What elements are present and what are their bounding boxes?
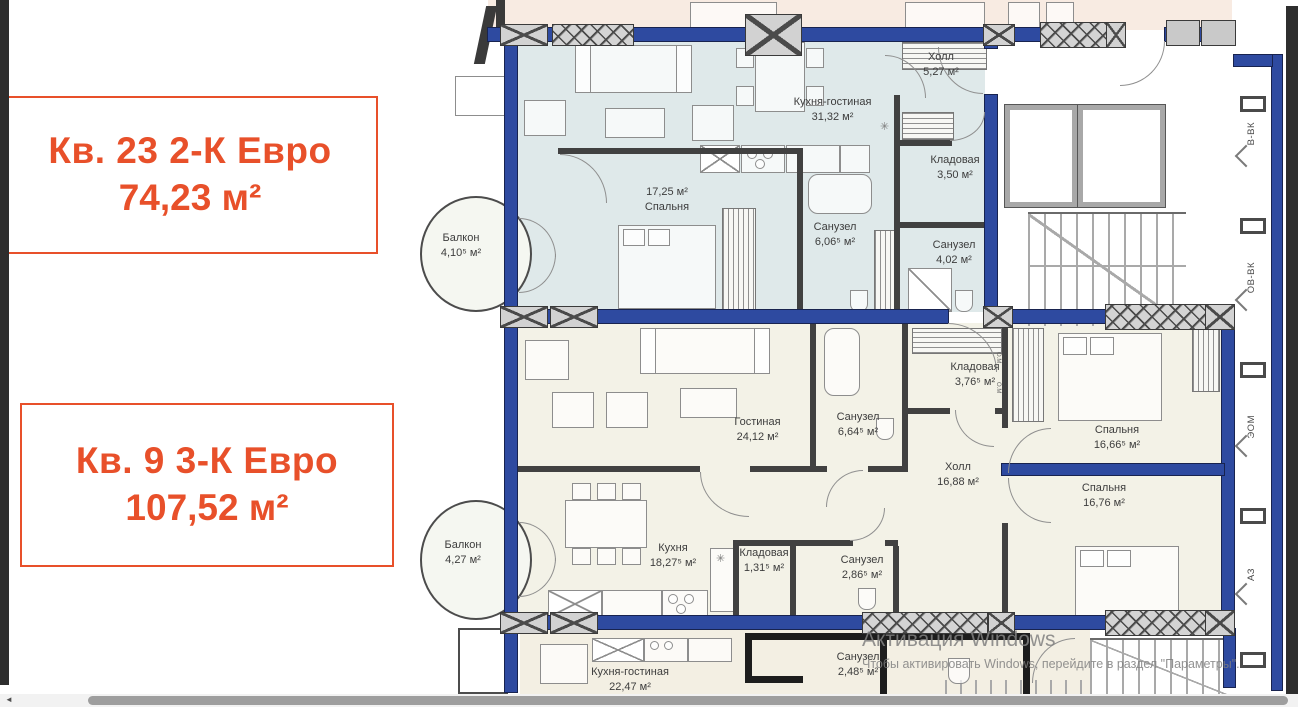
room-label-kitchen-living: Кухня-гостиная31,32 м² — [770, 95, 895, 126]
shaft-chevron — [1235, 583, 1258, 606]
room-label-bedroom: Спальня16,76 м² — [1063, 481, 1145, 512]
column — [550, 612, 598, 634]
fridge-icon: ✳ — [716, 552, 725, 565]
elevator-shaft — [1078, 105, 1165, 207]
elevator-shaft — [1005, 105, 1077, 207]
burner — [650, 641, 659, 650]
apartment-card-9: Кв. 9 3-К Евро 107,52 м² — [20, 403, 394, 567]
chair — [572, 483, 591, 500]
interior-wall — [810, 323, 816, 468]
column — [983, 24, 1015, 46]
room-label-kitchen-living: Кухня-гостиная22,47 м² — [565, 665, 695, 696]
balcony-fragment — [458, 628, 508, 694]
wall-segment — [505, 629, 517, 692]
burner — [676, 604, 686, 614]
column — [1205, 304, 1235, 330]
sofa — [640, 328, 770, 374]
column — [1106, 22, 1126, 48]
kitchen-sink — [592, 638, 644, 662]
column — [1105, 304, 1207, 330]
interior-wall — [745, 633, 752, 681]
pillow — [1080, 550, 1104, 567]
sofa-arm — [676, 45, 692, 93]
room-label-living: Гостиная24,12 м² — [715, 415, 800, 446]
duct-shaft — [874, 230, 896, 316]
room-label-bedroom: Спальня17,25 м² — [628, 185, 706, 216]
column — [1201, 20, 1236, 46]
interior-wall — [902, 408, 950, 414]
apartment-title: Кв. 9 3-К Евро — [76, 438, 338, 484]
left-edge-bar — [0, 0, 9, 685]
room-label-balcony: Балкон4,10⁵ м² — [428, 231, 494, 262]
shaft-label: ОВ-ВК — [1246, 262, 1257, 293]
interior-wall — [894, 222, 989, 228]
shaft-label: В-ВК — [1246, 122, 1257, 145]
scroll-left-arrow-icon[interactable]: ◄ — [5, 695, 13, 704]
shaft-wall — [1240, 218, 1266, 234]
armchair — [524, 100, 566, 136]
interior-wall — [902, 323, 908, 472]
shaft-label: АЗ — [1246, 568, 1257, 581]
wardrobe-shelving — [902, 112, 954, 140]
room-label-hall: Холл16,88 м² — [920, 460, 996, 491]
wall-segment — [505, 28, 517, 629]
wall-segment — [1234, 55, 1272, 66]
room-label-balcony: Балкон4,27 м² — [430, 538, 496, 569]
toilet — [850, 290, 868, 312]
watermark-title: Активация Windows — [862, 628, 1240, 652]
column — [552, 24, 634, 46]
room-label-storage: Кладовая3,50 м² — [924, 153, 986, 184]
shaft-label: ЭОМ — [1246, 415, 1257, 439]
chair — [597, 548, 616, 565]
interior-wall — [1002, 523, 1008, 618]
armchair — [525, 340, 569, 380]
furniture — [905, 2, 985, 28]
column — [500, 24, 548, 46]
chair — [736, 86, 754, 106]
pillow — [1090, 337, 1114, 355]
watermark-subtitle: Чтобы активировать Windows, перейдите в … — [862, 657, 1240, 671]
shaft-wall — [1240, 96, 1266, 112]
interior-wall — [894, 95, 900, 316]
armchair — [692, 105, 734, 141]
shower — [908, 268, 952, 312]
shaft-wall — [1240, 362, 1266, 378]
sofa-arm — [640, 328, 656, 374]
stair-landing-line — [1028, 265, 1186, 267]
column — [983, 306, 1013, 328]
room-label-bedroom: Спальня16,66⁵ м² — [1076, 423, 1158, 454]
coffee-table — [680, 388, 737, 418]
shaft-wall — [1240, 652, 1266, 668]
wardrobe-shelving — [1192, 328, 1220, 392]
interior-wall — [745, 676, 803, 683]
interior-wall — [813, 466, 827, 472]
room-label-bathroom: Санузел6,06⁵ м² — [800, 220, 870, 251]
wardrobe-shelving — [1012, 328, 1044, 422]
windows-activation-watermark: Активация Windows Чтобы активировать Win… — [862, 628, 1240, 671]
shaft-chevron — [1235, 145, 1258, 168]
kitchen-counter — [688, 638, 732, 662]
wall-segment — [985, 95, 997, 323]
room-label-bathroom: Санузел6,64⁵ м² — [822, 410, 894, 441]
armchair — [552, 392, 594, 428]
toilet — [858, 588, 876, 610]
bathtub — [808, 174, 872, 214]
scrollbar-thumb[interactable] — [88, 696, 1288, 705]
apartment-card-23: Кв. 23 2-К Евро 74,23 м² — [2, 96, 378, 254]
pillow — [1107, 550, 1131, 567]
pillow — [623, 229, 645, 246]
column — [500, 306, 548, 328]
floorplan-page: Кв. 23 2-К Евро 74,23 м² Кв. 9 3-К Евро … — [0, 0, 1298, 707]
door-arc — [1120, 41, 1165, 86]
sofa-arm — [575, 45, 591, 93]
room-label-bathroom: Санузел4,02 м² — [920, 238, 988, 269]
chair — [572, 548, 591, 565]
chair — [622, 483, 641, 500]
pillow — [648, 229, 670, 246]
column — [500, 612, 548, 634]
balcony-fragment — [455, 76, 507, 116]
right-edge-bar — [1286, 6, 1298, 694]
room-label-storage: Кладовая3,76⁵ м² — [936, 360, 1014, 391]
kitchen-counter — [602, 590, 662, 618]
column — [745, 14, 802, 56]
room-label-storage: Кладовая1,31⁵ м² — [728, 546, 800, 577]
apartment-area: 74,23 м² — [119, 174, 262, 222]
apartment-title: Кв. 23 2-К Евро — [48, 128, 331, 174]
toilet — [955, 290, 973, 312]
armchair — [606, 392, 648, 428]
kitchen-counter — [840, 145, 870, 173]
burner — [684, 594, 694, 604]
bathtub — [824, 328, 860, 396]
apartment-area: 107,52 м² — [125, 484, 288, 532]
interior-wall — [517, 466, 700, 472]
column — [1166, 20, 1200, 46]
column — [550, 306, 598, 328]
chair — [806, 48, 824, 68]
burner — [664, 641, 673, 650]
coffee-table — [605, 108, 665, 138]
burner — [755, 159, 765, 169]
sofa — [575, 45, 692, 93]
column — [1040, 22, 1108, 48]
interior-wall — [750, 466, 813, 472]
shaft-wall — [1240, 508, 1266, 524]
chair — [597, 483, 616, 500]
interior-wall — [894, 140, 952, 146]
wall-segment — [1272, 55, 1282, 690]
room-label-kitchen: Кухня18,27⁵ м² — [634, 541, 712, 572]
sofa-arm — [754, 328, 770, 374]
pillow — [1063, 337, 1087, 355]
horizontal-scrollbar[interactable]: ◄ — [0, 694, 1298, 707]
interior-wall — [558, 148, 803, 154]
wardrobe-shelving — [722, 208, 756, 310]
burner — [668, 594, 678, 604]
room-label-hall: Холл5,27 м² — [905, 50, 977, 81]
room-label-bathroom: Санузел2,86⁵ м² — [826, 553, 898, 584]
